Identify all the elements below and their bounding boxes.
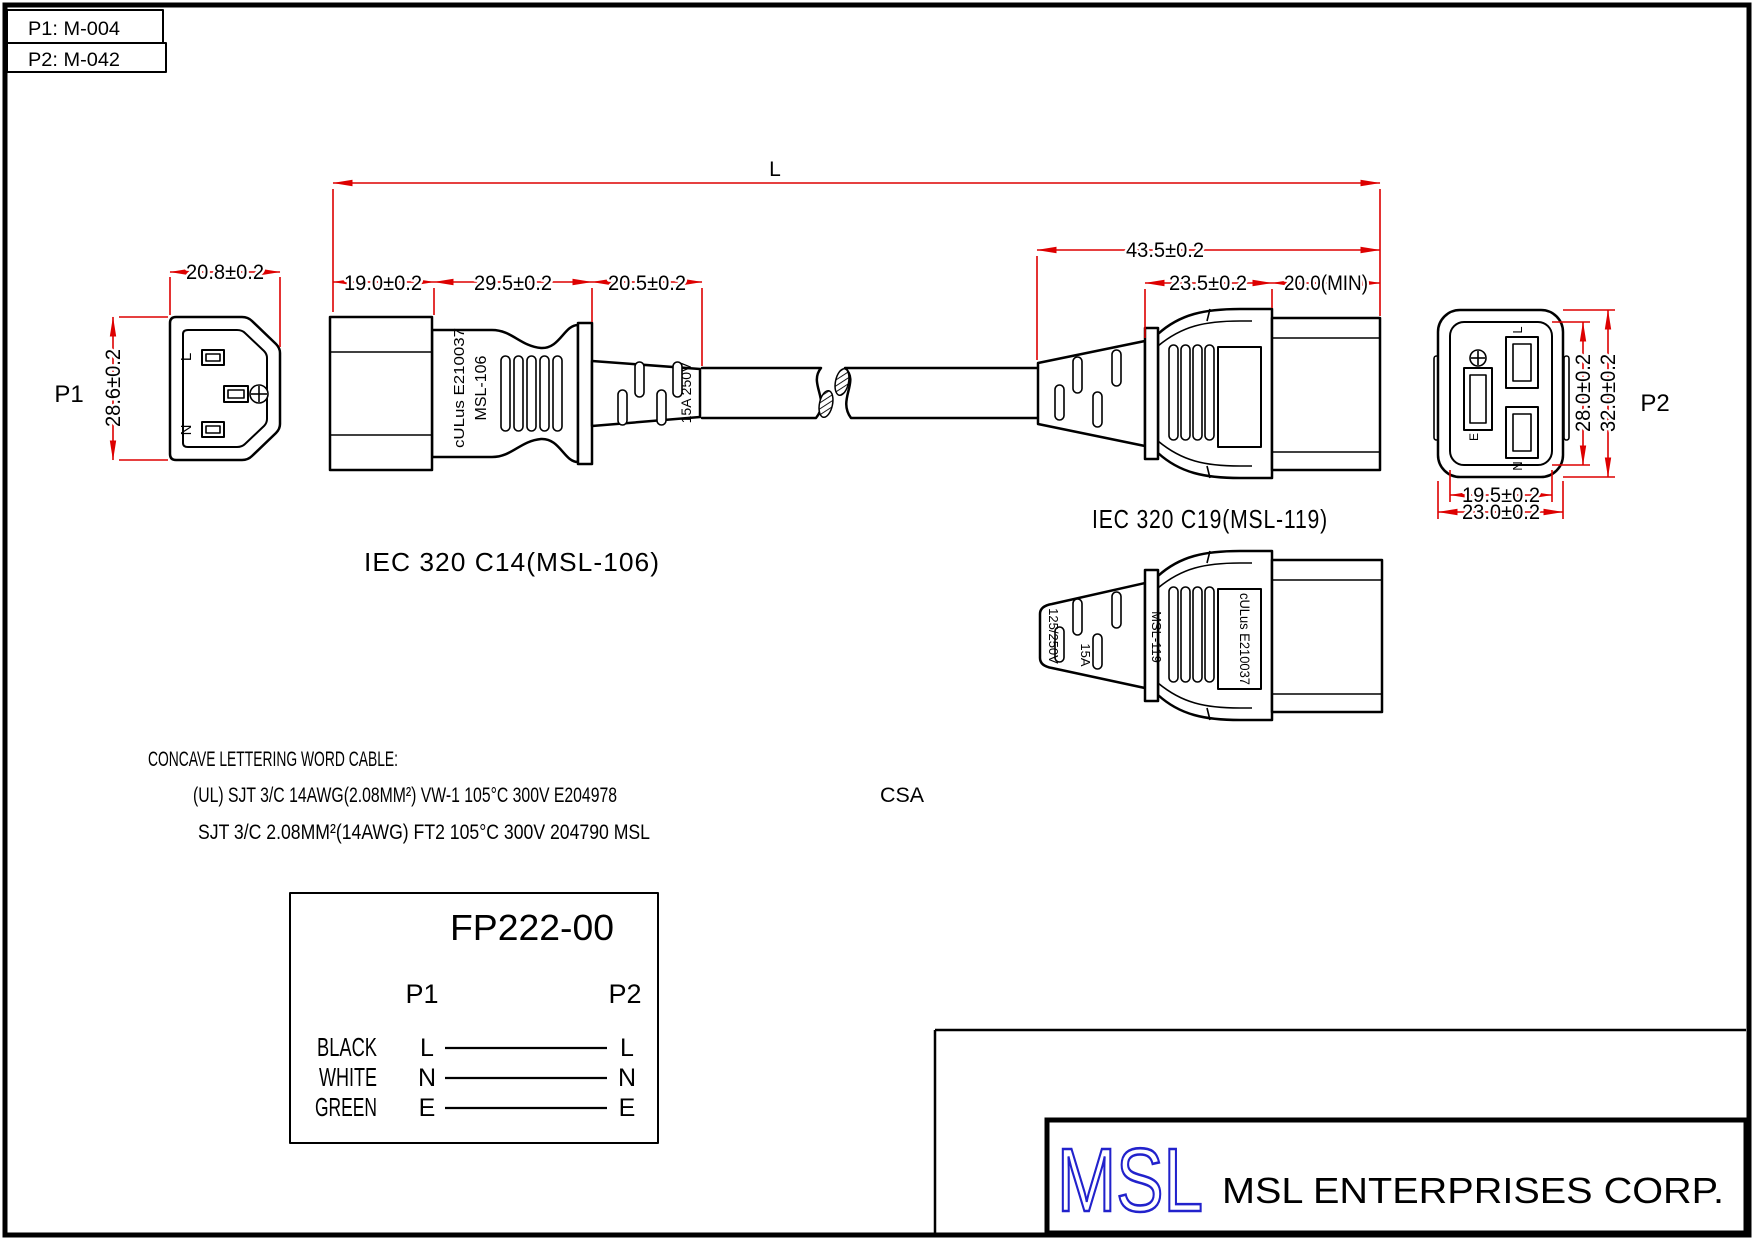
- cable: [702, 367, 1038, 418]
- c19-pin-label-l: L: [1510, 326, 1525, 333]
- dim-label-208: 20.8±0.2: [186, 261, 264, 284]
- c14-plug-side-view: cULus E210037 MSL-106 15A 250V: [330, 317, 700, 470]
- spec-part-number: FP222-00: [450, 907, 614, 948]
- wire-color: GREEN: [315, 1092, 377, 1122]
- c14-pin-label-l: L: [178, 353, 195, 361]
- c19-rating-amps: 15A: [1078, 643, 1093, 666]
- c14-flange: [578, 323, 592, 464]
- c19-front: [1272, 318, 1380, 470]
- wire-color: WHITE: [319, 1062, 377, 1092]
- cable-note-title: CONCAVE LETTERING WORD CABLE:: [148, 748, 398, 771]
- c19-bottom-view: 125/250V 15A MSL-119 cULus E210037: [1040, 551, 1382, 720]
- cable-left-segment: [702, 368, 821, 418]
- c14-grip-ribs: [501, 356, 562, 431]
- ref-p2-text: P2: M-042: [28, 50, 120, 71]
- p2-face-view: L N E: [1434, 310, 1569, 477]
- c19-slot-neutral: [1506, 407, 1538, 458]
- c19-ul-mark: cULus E210037: [1237, 593, 1253, 685]
- label-p1: P1: [54, 381, 83, 408]
- wire-from: L: [420, 1034, 434, 1062]
- dim-label-435: 43.5±0.2: [1126, 239, 1204, 262]
- c19-slot-live: [1506, 337, 1538, 388]
- cable-note-line1: (UL) SJT 3/C 14AWG(2.08MM²) VW-1 105°C 3…: [193, 784, 617, 807]
- cable-note-csa: CSA: [880, 784, 924, 807]
- dim-label-320: 32.0±0.2: [1597, 354, 1620, 432]
- reference-boxes: P1: M-004 P2: M-042: [7, 10, 166, 72]
- c19-pin-label-n: N: [1510, 461, 1525, 470]
- c14-front: [330, 317, 432, 470]
- dim-label-205: 20.5±0.2: [608, 272, 686, 295]
- c14-model-mark: MSL-106: [473, 355, 490, 420]
- caption-c19: IEC 320 C19(MSL-119): [1092, 504, 1328, 534]
- dim-label-235: 23.5±0.2: [1169, 272, 1247, 295]
- dim-label-L: L: [769, 158, 781, 181]
- c14-pin-earth: [224, 385, 268, 403]
- cable-right-segment: [845, 368, 1038, 418]
- c14-pin-live: [202, 350, 224, 365]
- sheet-border: [5, 5, 1749, 1235]
- c19-side-view: [1038, 309, 1380, 478]
- company-name: MSL ENTERPRISES CORP.: [1222, 1170, 1724, 1211]
- c19-flange: [1145, 328, 1158, 459]
- c19-pin-label-e: E: [1467, 433, 1481, 441]
- caption-c14: IEC 320 C14(MSL-106): [364, 547, 660, 577]
- c19-label-area: [1218, 347, 1261, 447]
- side-tab: [1564, 356, 1569, 440]
- label-p2: P2: [1640, 390, 1669, 417]
- dim-label-280: 28.0±0.2: [1572, 354, 1595, 432]
- c14-rating-mark: 15A 250V: [678, 362, 694, 423]
- c19-rating-voltage: 125/250V: [1046, 608, 1061, 664]
- c14-ul-mark: cULus E210037: [451, 328, 468, 448]
- wire-to: E: [619, 1094, 636, 1122]
- drawing-canvas: P1: M-004 P2: M-042 L N: [0, 0, 1754, 1240]
- spec-col-p2: P2: [608, 979, 641, 1009]
- msl-logo: MSL: [1057, 1131, 1203, 1231]
- c19-front-bottom: [1272, 560, 1382, 712]
- dim-label-20min: 20.0(MIN): [1284, 272, 1368, 295]
- cable-lettering-note: CONCAVE LETTERING WORD CABLE: (UL) SJT 3…: [148, 748, 924, 844]
- dim-label-230: 23.0±0.2: [1462, 501, 1540, 524]
- wire-to: N: [618, 1064, 636, 1092]
- drawing-sheet: P1: M-004 P2: M-042 L N: [0, 0, 1754, 1240]
- wire-color: BLACK: [317, 1032, 377, 1062]
- wire-from: E: [419, 1094, 436, 1122]
- wire-from: N: [418, 1064, 436, 1092]
- c19-strain-relief: [1038, 341, 1145, 446]
- c14-pin-neutral: [202, 422, 224, 437]
- c19-model-mark: MSL-119: [1149, 611, 1164, 663]
- ref-p1-text: P1: M-004: [28, 19, 120, 40]
- title-block: MSL MSL ENTERPRISES CORP.: [935, 1030, 1746, 1235]
- p1-face-view: L N: [170, 317, 280, 460]
- cable-note-line2: SJT 3/C 2.08MM²(14AWG) FT2 105°C 300V 20…: [198, 821, 650, 844]
- spec-col-p1: P1: [405, 979, 438, 1009]
- wire-to: L: [620, 1034, 634, 1062]
- c14-pin-label-n: N: [178, 425, 195, 436]
- dim-label-286: 28.6±0.2: [102, 349, 125, 427]
- dim-label-19: 19.0±0.2: [344, 272, 422, 295]
- dim-label-295: 29.5±0.2: [474, 272, 552, 295]
- wiring-spec-box: FP222-00 P1 P2 BLACK L L WHITE N N GREEN…: [290, 893, 658, 1143]
